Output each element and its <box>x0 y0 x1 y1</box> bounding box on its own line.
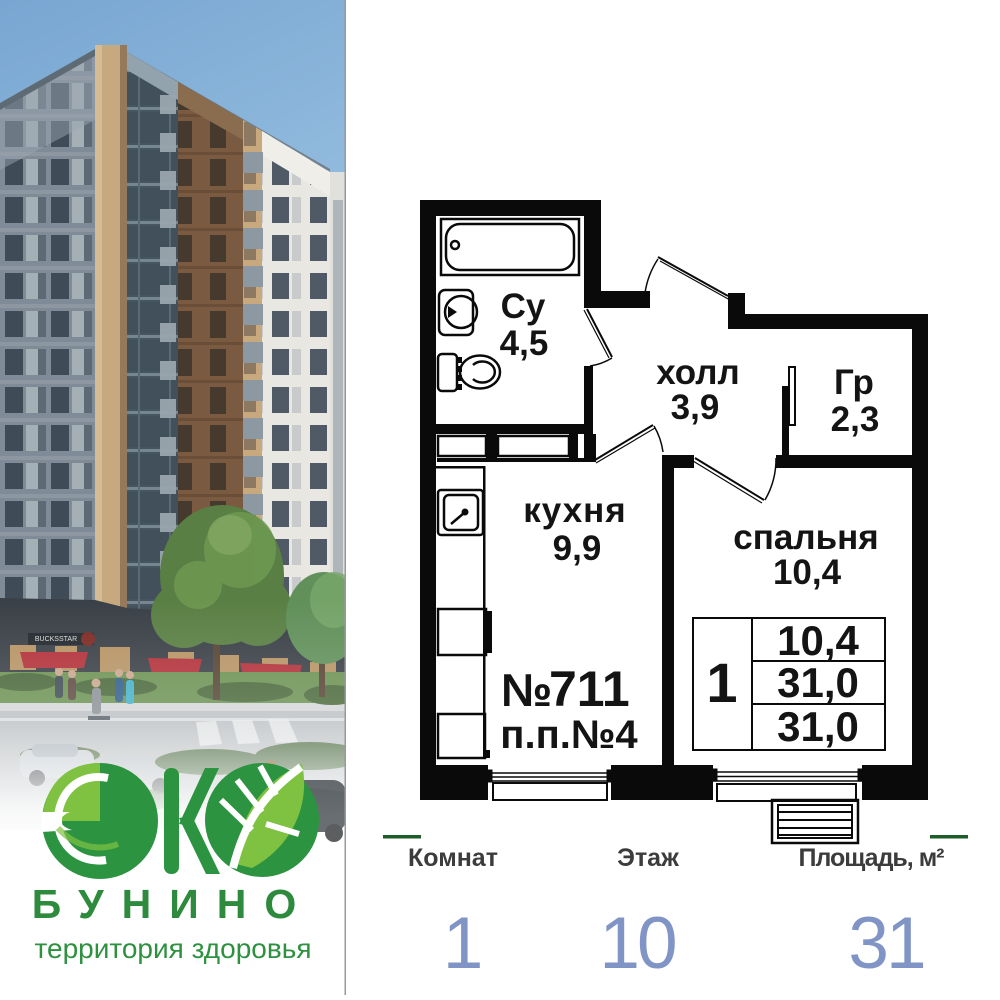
svg-text:1: 1 <box>443 903 484 984</box>
svg-text:711: 711 <box>549 661 630 717</box>
svg-text:3,9: 3,9 <box>671 388 720 427</box>
svg-text:№: № <box>501 664 552 716</box>
svg-text:спальня: спальня <box>733 518 878 557</box>
svg-text:9,9: 9,9 <box>553 529 602 568</box>
svg-text:Су: Су <box>501 287 546 326</box>
svg-text:1: 1 <box>706 651 737 714</box>
svg-text:Площадь, м²: Площадь, м² <box>798 844 944 872</box>
svg-text:31,0: 31,0 <box>777 659 859 706</box>
svg-text:п.п.№4: п.п.№4 <box>500 713 638 757</box>
svg-text:10,4: 10,4 <box>777 617 859 664</box>
svg-text:Комнат: Комнат <box>408 844 498 872</box>
svg-text:31,0: 31,0 <box>777 703 859 750</box>
svg-text:Гр: Гр <box>834 363 874 402</box>
svg-text:холл: холл <box>656 353 740 392</box>
svg-text:кухня: кухня <box>523 491 626 530</box>
svg-text:10,4: 10,4 <box>773 553 842 592</box>
svg-text:31: 31 <box>848 903 924 984</box>
svg-text:Этаж: Этаж <box>617 844 679 872</box>
svg-text:2,3: 2,3 <box>831 400 880 439</box>
svg-text:4,5: 4,5 <box>500 324 549 363</box>
svg-text:10: 10 <box>599 903 675 984</box>
